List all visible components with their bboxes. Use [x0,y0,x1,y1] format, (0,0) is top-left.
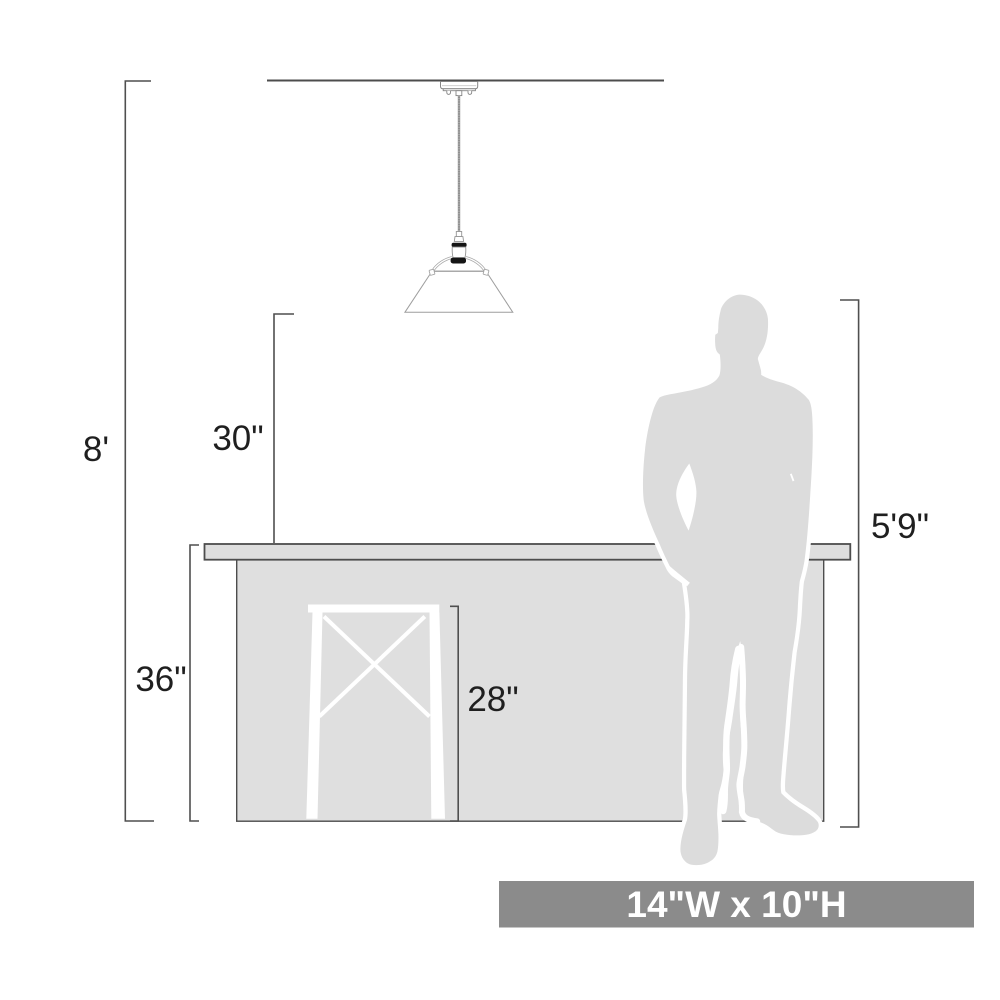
svg-text:36": 36" [135,660,186,699]
svg-text:30": 30" [212,419,263,458]
svg-text:8': 8' [83,430,109,469]
svg-text:28": 28" [467,680,518,719]
svg-text:5'9": 5'9" [871,507,929,546]
svg-text:14"W x 10"H: 14"W x 10"H [626,884,846,925]
